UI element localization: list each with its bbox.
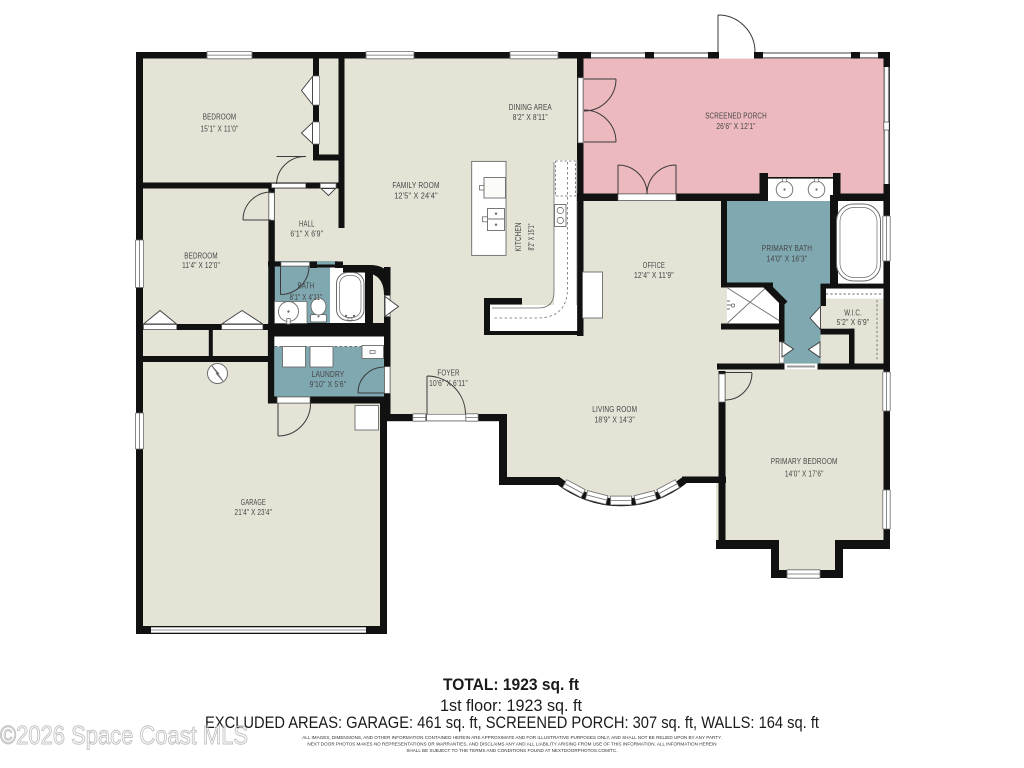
svg-text:PRIMARY BEDROOM: PRIMARY BEDROOM [771,456,838,466]
svg-text:21'4" X 23'4": 21'4" X 23'4" [235,507,273,517]
svg-text:5'2" X 6'9": 5'2" X 6'9" [837,317,870,327]
svg-text:18'9" X 14'3": 18'9" X 14'3" [595,414,635,424]
svg-text:ALL IMAGES, DIMENSIONS, AND OT: ALL IMAGES, DIMENSIONS, AND OTHER INFORM… [302,735,722,740]
svg-text:12'5" X 24'4": 12'5" X 24'4" [394,191,438,201]
svg-text:8'2" X 15'1": 8'2" X 15'1" [526,224,536,251]
svg-text:SCREENED PORCH: SCREENED PORCH [705,111,767,121]
svg-text:8'2" X 8'11": 8'2" X 8'11" [513,112,548,122]
svg-text:FAMILY ROOM: FAMILY ROOM [392,180,439,190]
svg-text:15'1" X 11'0": 15'1" X 11'0" [201,124,239,134]
svg-text:FOYER: FOYER [437,368,459,378]
svg-text:GARAGE: GARAGE [241,497,266,507]
svg-text:©2026 Space Coast MLS: ©2026 Space Coast MLS [0,720,248,750]
svg-text:NEXT DOOR PHOTOS MAKES NO REPR: NEXT DOOR PHOTOS MAKES NO REPRESENTATION… [307,742,716,747]
svg-text:12'4" X 11'9": 12'4" X 11'9" [634,270,674,280]
svg-text:PRIMARY BATH: PRIMARY BATH [762,243,812,253]
svg-text:9'10" X 5'6": 9'10" X 5'6" [310,379,347,389]
svg-text:11'4" X 12'0": 11'4" X 12'0" [182,260,220,270]
svg-text:HALL: HALL [299,219,315,229]
svg-text:1st floor: 1923 sq. ft: 1st floor: 1923 sq. ft [440,697,582,715]
svg-text:14'0" X 16'3": 14'0" X 16'3" [767,254,808,264]
svg-text:OFFICE: OFFICE [643,260,665,270]
svg-text:10'6" X 6'11": 10'6" X 6'11" [429,378,468,388]
svg-text:BEDROOM: BEDROOM [184,250,217,260]
svg-text:LAUNDRY: LAUNDRY [312,369,345,379]
svg-text:26'6" X 12'1": 26'6" X 12'1" [716,121,755,131]
svg-text:SHALL BE SUBJECT TO THE TERMS: SHALL BE SUBJECT TO THE TERMS AND CONDIT… [406,748,617,753]
svg-text:LIVING ROOM: LIVING ROOM [592,404,637,414]
svg-text:DINING AREA: DINING AREA [509,102,552,112]
svg-text:8'1" X 4'11": 8'1" X 4'11" [290,292,323,302]
svg-text:EXCLUDED AREAS: GARAGE: 461 sq: EXCLUDED AREAS: GARAGE: 461 sq. ft, SCRE… [205,714,819,732]
svg-text:KITCHEN: KITCHEN [513,223,523,252]
svg-text:TOTAL: 1923 sq. ft: TOTAL: 1923 sq. ft [443,675,579,694]
svg-text:BEDROOM: BEDROOM [203,111,237,121]
svg-text:6'1" X 6'9": 6'1" X 6'9" [290,229,323,239]
svg-text:14'0" X 17'6": 14'0" X 17'6" [785,469,824,479]
svg-text:BATH: BATH [298,281,315,291]
